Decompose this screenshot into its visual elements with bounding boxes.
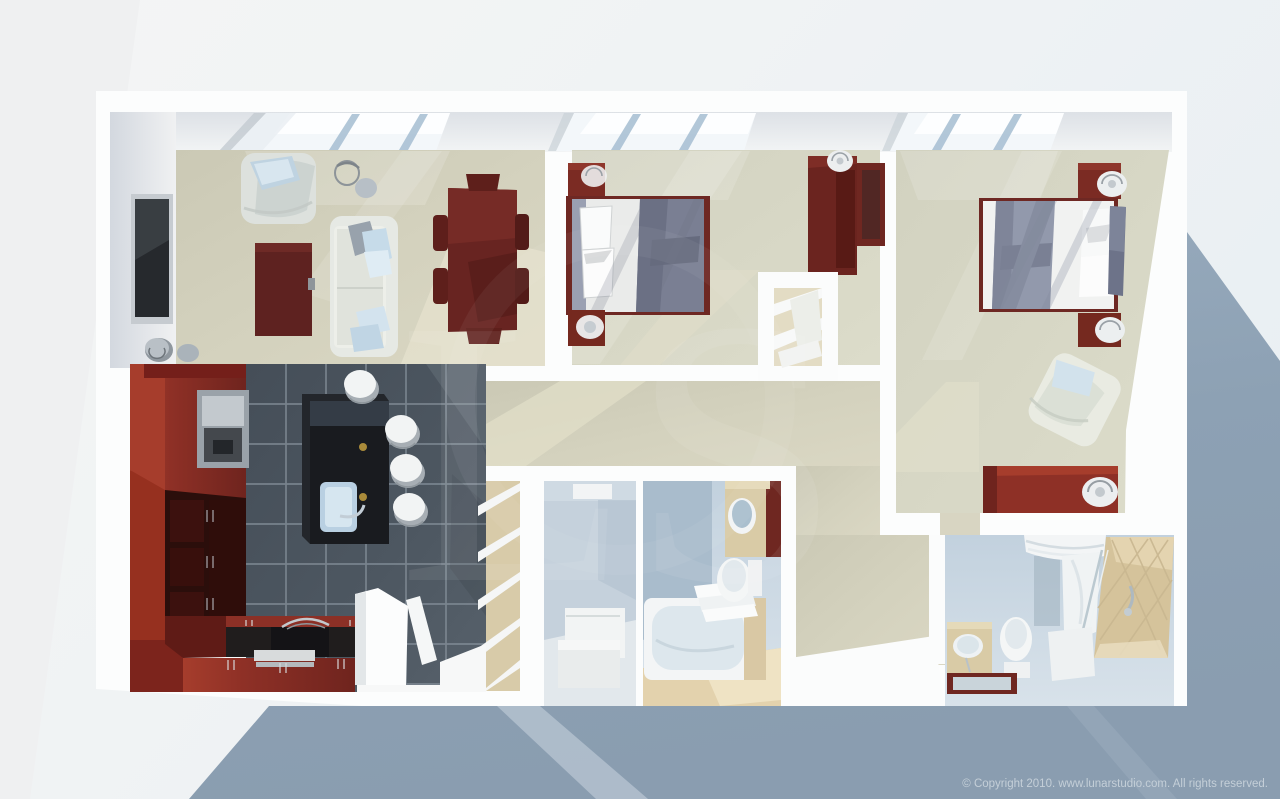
svg-text:© Copyright 2010. www.lunarstu: © Copyright 2010. www.lunarstudio.com. A… bbox=[962, 778, 1268, 790]
svg-text:LS: LS bbox=[398, 242, 841, 663]
